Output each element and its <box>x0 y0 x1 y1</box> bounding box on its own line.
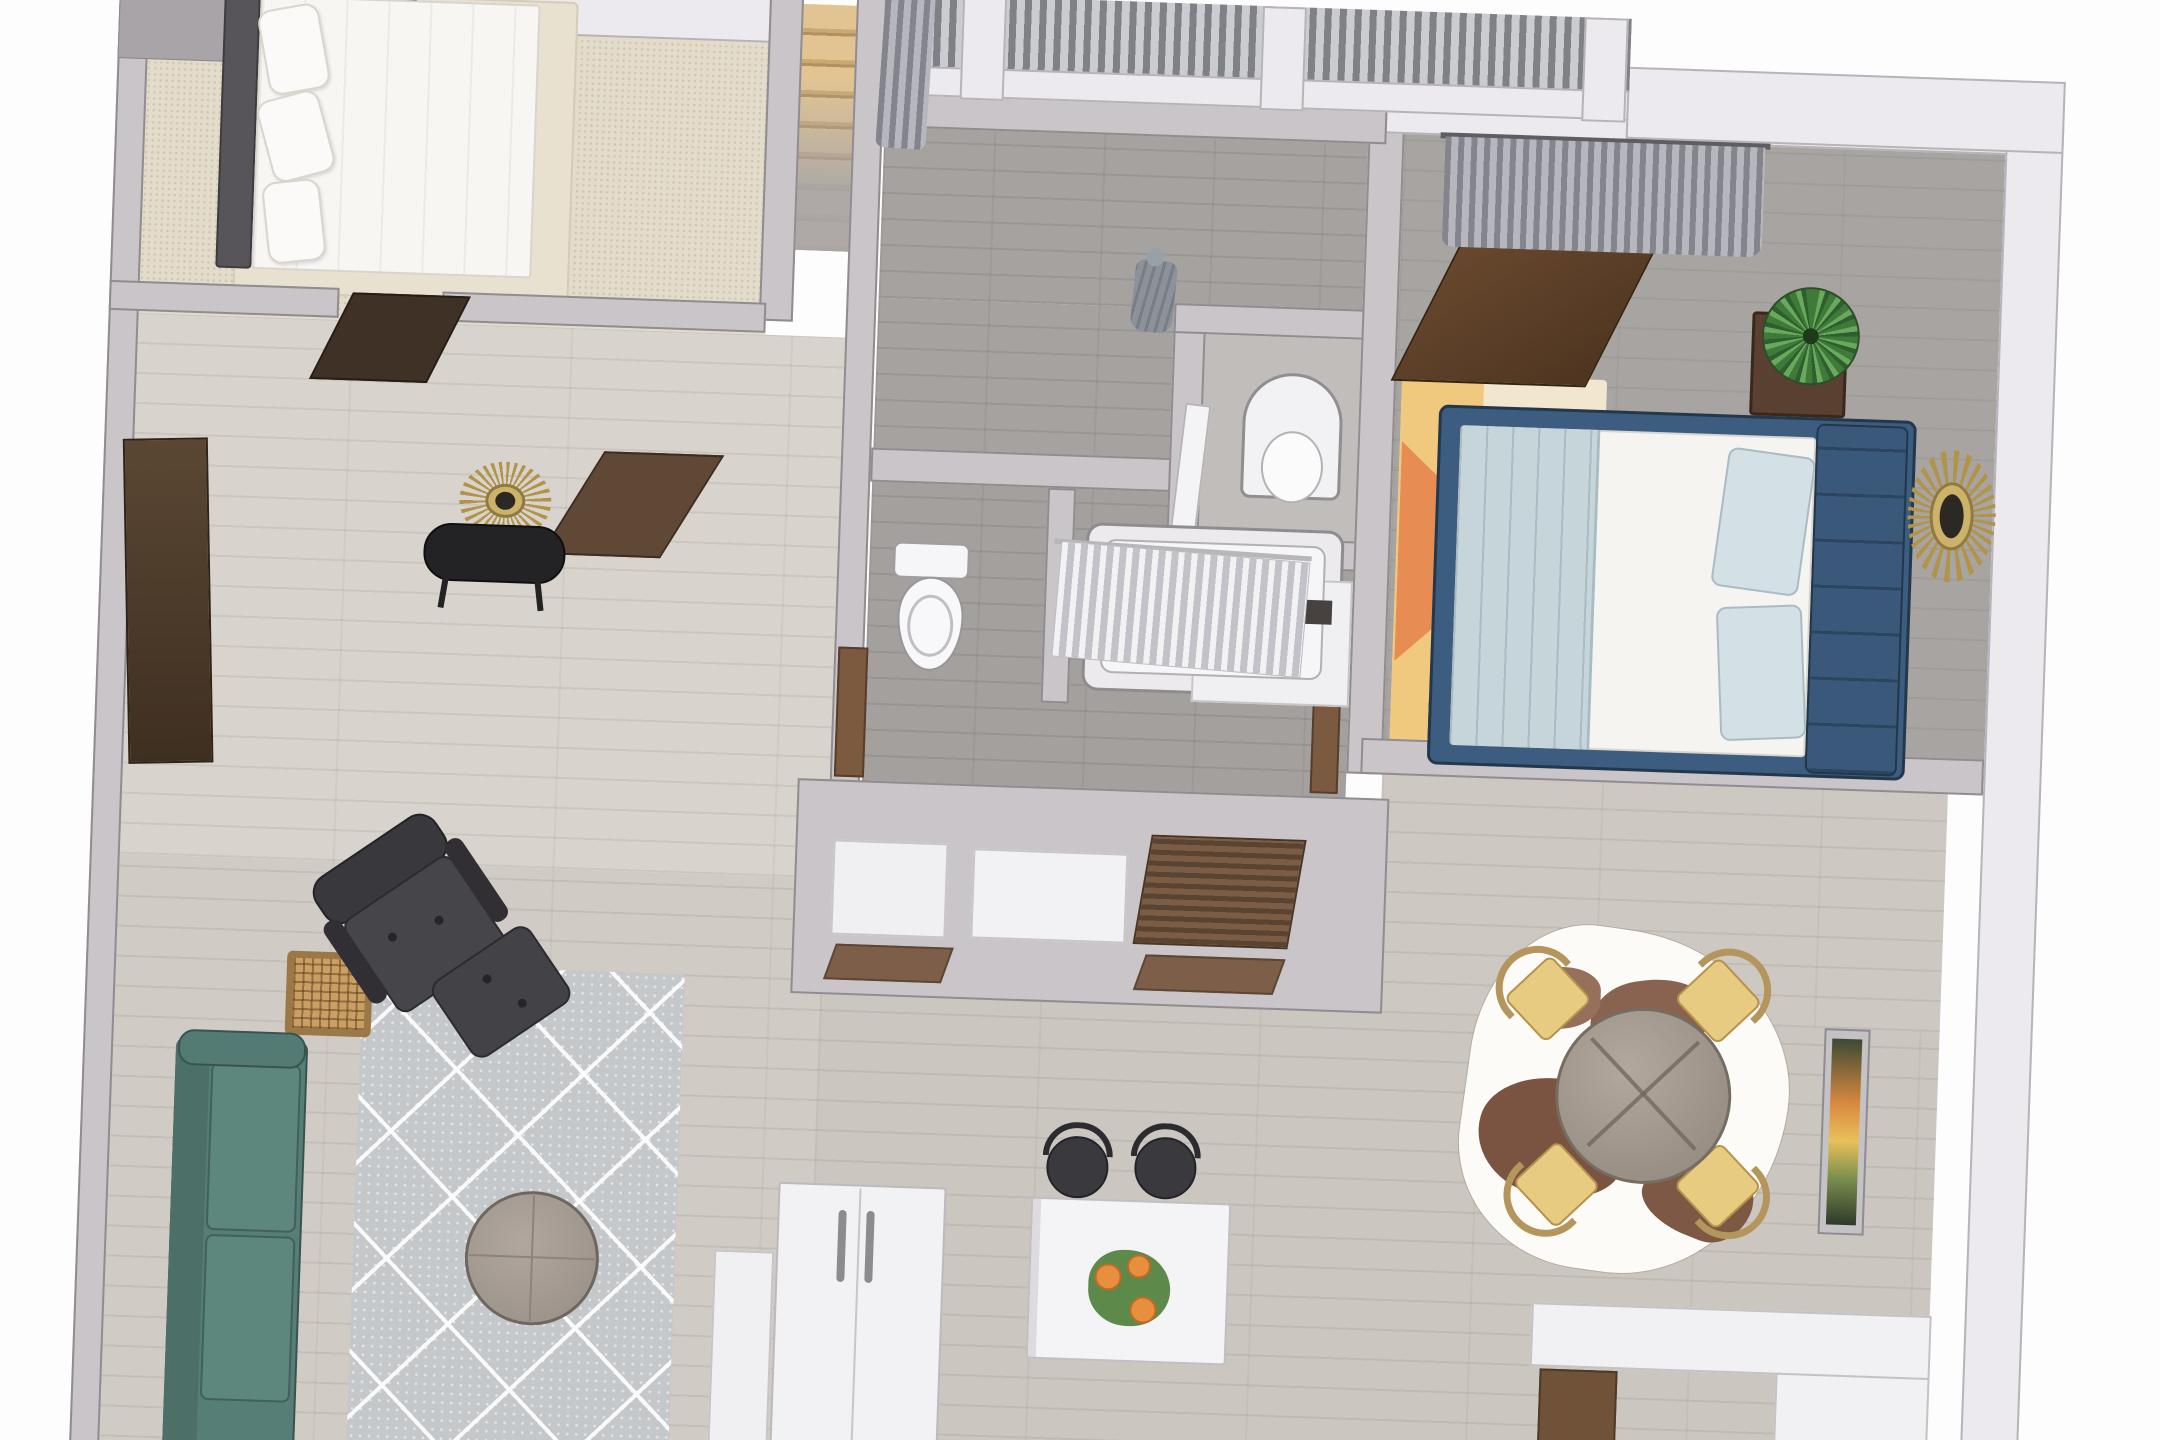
apartment-render <box>0 0 2160 1440</box>
bath-vanity-left <box>834 647 869 778</box>
sofa-cushion-2 <box>200 1234 296 1403</box>
entry-counter-side <box>1770 1373 1929 1440</box>
shower-curtain <box>1051 541 1310 678</box>
sofa-armrest <box>177 1029 306 1069</box>
closet-alcove-1 <box>830 839 948 938</box>
toilet-tank <box>893 541 970 580</box>
balcony-post-1 <box>960 0 1008 101</box>
bed1-blanket <box>1449 425 1600 750</box>
closet-mat-1 <box>823 944 954 984</box>
bed1-pillow-2 <box>1716 604 1807 741</box>
hallway-floor-lower <box>873 298 1174 463</box>
hanging-robe <box>1129 258 1178 334</box>
console-table <box>422 522 566 585</box>
entry-hall-floor <box>113 313 845 879</box>
window-curtains <box>1442 136 1766 257</box>
closet-bifold-doors <box>1132 835 1306 950</box>
floorplan-scene <box>0 0 2160 1440</box>
sofa-cushion-1 <box>206 1062 302 1233</box>
kitchen-counter <box>706 1250 774 1440</box>
balcony-post-3 <box>1581 17 1629 122</box>
hallway-floor <box>879 123 1369 315</box>
bed1-headboard <box>1805 424 1909 777</box>
entry-open-door <box>123 437 214 763</box>
closet-mat-2 <box>1133 954 1286 994</box>
balcony-post-2 <box>1259 6 1307 111</box>
bedroom2-pillow-3 <box>261 177 327 265</box>
closet-alcove-2 <box>970 848 1128 943</box>
entry-counter-mat <box>1534 1368 1617 1440</box>
refrigerator <box>768 1182 947 1440</box>
